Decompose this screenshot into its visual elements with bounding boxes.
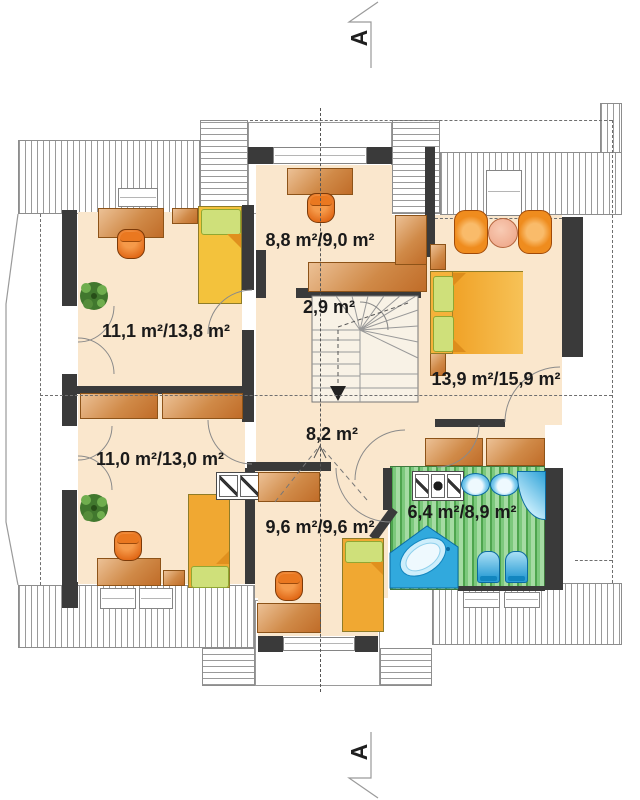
double-bed — [430, 271, 523, 354]
roof-hatch-dormer-bottom-right — [380, 648, 432, 686]
eaves-dashed-left — [40, 214, 41, 585]
office-chair-bottom-left — [114, 531, 142, 561]
wardrobe-bottom-left-2 — [162, 393, 243, 419]
window-bottom-left-1 — [100, 588, 136, 609]
washing-machine-icon — [431, 474, 445, 498]
wall-bedroom-hall — [435, 419, 505, 427]
wardrobe-bottom-left-1 — [80, 393, 158, 419]
area-label-bottom-middle: 9,6 m²/9,6 m² — [258, 517, 382, 538]
wall-center-vert-2 — [242, 330, 254, 422]
window-bathroom-2 — [504, 592, 540, 608]
wall-left-2 — [62, 374, 77, 426]
wardrobe-bottom-middle — [258, 472, 320, 502]
window-top-left — [118, 188, 158, 207]
wall-bathroom-bottom — [458, 586, 545, 591]
wall-dormer-top-left — [248, 147, 274, 164]
shelf-top-left — [172, 208, 198, 224]
wall-tm-bedroom — [425, 147, 435, 219]
laundry-appliances — [216, 472, 262, 500]
area-label-bottom-left: 11,0 m²/13,0 m² — [80, 449, 240, 470]
desk-bottom-left — [97, 558, 161, 586]
wall-dormer-bottom-left — [258, 636, 283, 652]
window-bathroom-1 — [463, 592, 500, 608]
floor-plan: A A 8,8 m²/9,0 m² 2,9 m² 11,1 m²/13,8 m²… — [0, 0, 640, 800]
wall-bathroom-right — [545, 468, 563, 590]
wall-center-vert-1 — [242, 205, 254, 290]
appliance-icon — [447, 474, 461, 498]
toilet — [477, 551, 500, 583]
round-table — [488, 218, 518, 248]
bed-bottom-left — [188, 494, 230, 588]
armchair-right — [518, 210, 552, 254]
appliance-icon — [415, 474, 429, 498]
section-marker-bottom-letter: A — [346, 740, 370, 764]
sink-1 — [461, 473, 490, 496]
wall-left-corner — [62, 582, 78, 608]
office-chair-top-middle — [307, 193, 335, 223]
wall-left-3 — [62, 490, 77, 582]
desk-bottom-middle — [257, 603, 321, 633]
section-line-a — [320, 108, 321, 692]
armchair-left — [454, 210, 488, 254]
wall-bedroom-right — [562, 217, 583, 357]
bidet — [505, 551, 528, 583]
roof-hatch-bottom-left — [18, 585, 255, 648]
area-label-top-middle: 8,8 m²/9,0 m² — [256, 230, 384, 251]
washer-dryer — [412, 471, 464, 501]
roof-hatch-top-left — [18, 140, 200, 214]
roof-hatch-dormer-bottom-left — [202, 648, 255, 686]
area-label-bedroom: 13,9 m²/15,9 m² — [422, 369, 570, 390]
wall-left-1 — [62, 210, 77, 306]
office-chair-top-left — [117, 229, 145, 259]
ridge-line — [40, 395, 612, 396]
roof-window-bedroom — [486, 170, 522, 216]
roof-hatch-top-right — [440, 152, 622, 215]
eaves-dashed-top — [250, 120, 612, 121]
bed-bottom-middle — [342, 538, 384, 632]
sink-2 — [490, 473, 519, 496]
area-label-staircase: 2,9 m² — [294, 297, 364, 318]
roof-hatch-dormer-left — [200, 120, 248, 214]
wardrobe-top-middle-v — [395, 215, 427, 265]
window-dormer-bottom — [283, 637, 355, 651]
bathroom-cabinet-1 — [425, 438, 483, 466]
office-chair-bottom-middle — [275, 571, 303, 601]
eaves-dashed-right — [612, 120, 613, 583]
roof-hatch-top-right-gable — [600, 103, 622, 153]
window-bottom-left-2 — [139, 588, 173, 609]
area-label-bathroom: 6,4 m²/8,9 m² — [402, 502, 522, 523]
appliance-icon — [219, 475, 238, 497]
wardrobe-top-middle-h — [308, 262, 427, 292]
area-label-hall: 8,2 m² — [296, 424, 368, 445]
appliance-icon — [240, 475, 259, 497]
bathroom-cabinet-2 — [486, 438, 545, 466]
wall-bathroom-left — [383, 468, 392, 510]
shelf-bottom-left — [163, 570, 185, 586]
wall-bm-top — [247, 462, 331, 471]
nightstand-1 — [430, 244, 446, 270]
eaves-dashed-bottom-right — [575, 560, 612, 561]
bed-top-left — [198, 206, 242, 304]
wall-dormer-top-right — [366, 147, 392, 164]
wall-tm-left-low — [256, 250, 266, 298]
section-marker-top-letter: A — [346, 26, 370, 50]
wall-dormer-bottom-right — [355, 636, 378, 652]
area-label-top-left: 11,1 m²/13,8 m² — [86, 321, 246, 342]
